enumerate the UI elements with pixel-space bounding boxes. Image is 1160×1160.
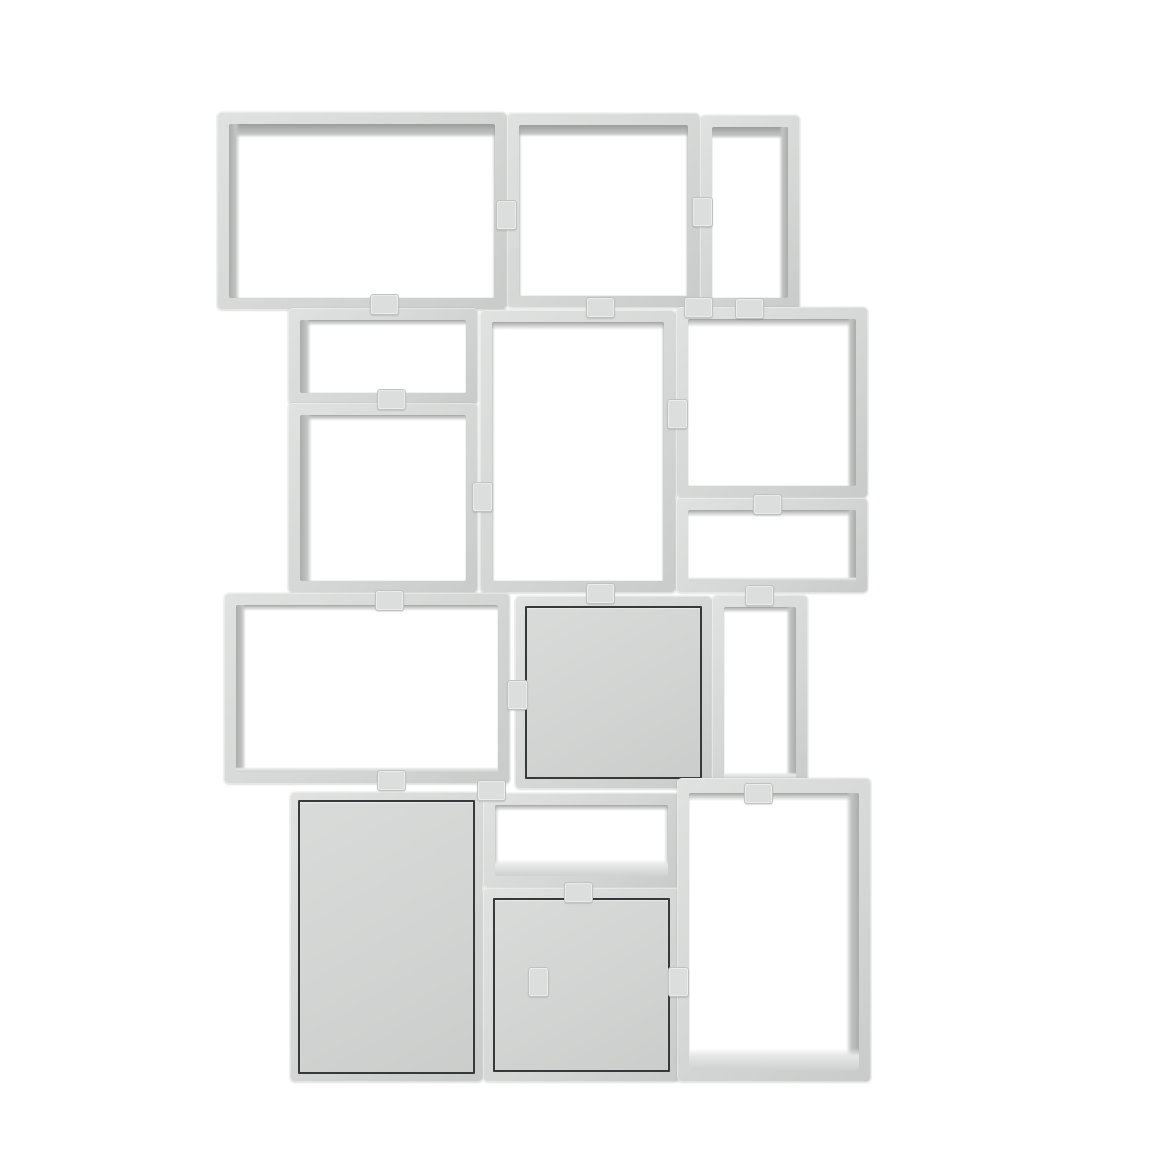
shelf-box-a xyxy=(217,112,507,310)
box-opening xyxy=(300,320,466,393)
box-opening xyxy=(519,125,688,296)
inner-shadow-right xyxy=(779,127,788,298)
box-opening xyxy=(495,805,668,876)
connector-clip xyxy=(377,770,406,791)
inner-shadow-left xyxy=(229,124,240,298)
connector-clip xyxy=(496,200,517,230)
shelf-box-j xyxy=(515,596,712,789)
inner-shadow-top xyxy=(236,605,498,611)
connector-clip xyxy=(684,297,713,318)
connector-clip xyxy=(753,494,782,515)
box-opening xyxy=(688,510,856,581)
product-photo-canvas xyxy=(0,0,1160,1160)
inner-floor xyxy=(495,859,668,876)
inner-shadow-top xyxy=(495,805,668,811)
connector-clip xyxy=(564,882,593,903)
inner-shadow-right xyxy=(661,322,664,581)
connector-clip xyxy=(586,297,615,318)
inner-floor xyxy=(689,1048,859,1070)
box-opening xyxy=(236,605,498,772)
inner-shadow-left xyxy=(236,605,246,772)
connector-clip xyxy=(370,294,399,315)
box-opening xyxy=(300,415,466,581)
cabinet-door xyxy=(298,800,475,1074)
inner-shadow-top xyxy=(492,322,664,330)
connector-clip xyxy=(667,399,688,429)
inner-shadow-right xyxy=(846,793,859,1070)
connector-clip xyxy=(377,389,406,410)
cabinet-door xyxy=(525,606,702,779)
connector-clip xyxy=(477,780,506,801)
connector-clip xyxy=(586,583,615,604)
connector-clip xyxy=(507,680,528,710)
inner-shadow-top xyxy=(300,415,466,421)
shelf-box-f xyxy=(480,310,676,593)
inner-floor xyxy=(236,767,498,772)
inner-shadow-top xyxy=(229,124,495,138)
box-opening xyxy=(724,607,796,780)
connector-clip xyxy=(528,967,549,997)
shelf-box-o xyxy=(677,778,871,1082)
shelf-box-g xyxy=(676,307,868,498)
cabinet-door xyxy=(493,898,670,1072)
shelf-box-m xyxy=(483,793,680,888)
shelf-box-c xyxy=(700,115,800,310)
shelving-unit xyxy=(0,0,1160,1160)
inner-shadow-left xyxy=(492,322,495,581)
box-opening xyxy=(689,793,859,1070)
inner-shadow-top xyxy=(519,125,688,137)
connector-clip xyxy=(375,590,404,611)
connector-clip xyxy=(735,298,764,319)
connector-clip xyxy=(745,585,774,606)
inner-shadow-right xyxy=(847,319,856,486)
connector-clip xyxy=(472,482,493,512)
box-opening xyxy=(688,319,856,486)
shelf-box-l xyxy=(290,792,483,1082)
shelf-box-i xyxy=(224,593,510,784)
inner-floor xyxy=(688,577,856,581)
inner-shadow-top xyxy=(712,127,788,139)
shelf-box-n xyxy=(483,888,680,1082)
box-opening xyxy=(492,322,664,581)
inner-shadow-right xyxy=(685,125,688,296)
shelf-box-k xyxy=(712,595,808,792)
inner-shadow-right xyxy=(664,805,668,876)
inner-shadow-top xyxy=(689,793,859,801)
inner-shadow-right xyxy=(847,510,856,581)
shelf-box-b xyxy=(507,113,700,308)
inner-shadow-left xyxy=(495,805,499,876)
inner-shadow-left xyxy=(300,320,311,393)
box-opening xyxy=(229,124,495,298)
shelf-box-e xyxy=(288,403,478,593)
connector-clip xyxy=(668,967,689,997)
inner-shadow-top xyxy=(300,320,466,326)
inner-shadow-top xyxy=(724,607,796,613)
inner-shadow-left xyxy=(519,125,522,296)
box-opening xyxy=(712,127,788,298)
inner-shadow-top xyxy=(688,319,856,327)
connector-clip xyxy=(744,783,773,804)
inner-shadow-right xyxy=(492,124,495,298)
inner-shadow-left xyxy=(300,415,312,581)
connector-clip xyxy=(692,197,713,227)
inner-shadow-right xyxy=(786,607,796,780)
